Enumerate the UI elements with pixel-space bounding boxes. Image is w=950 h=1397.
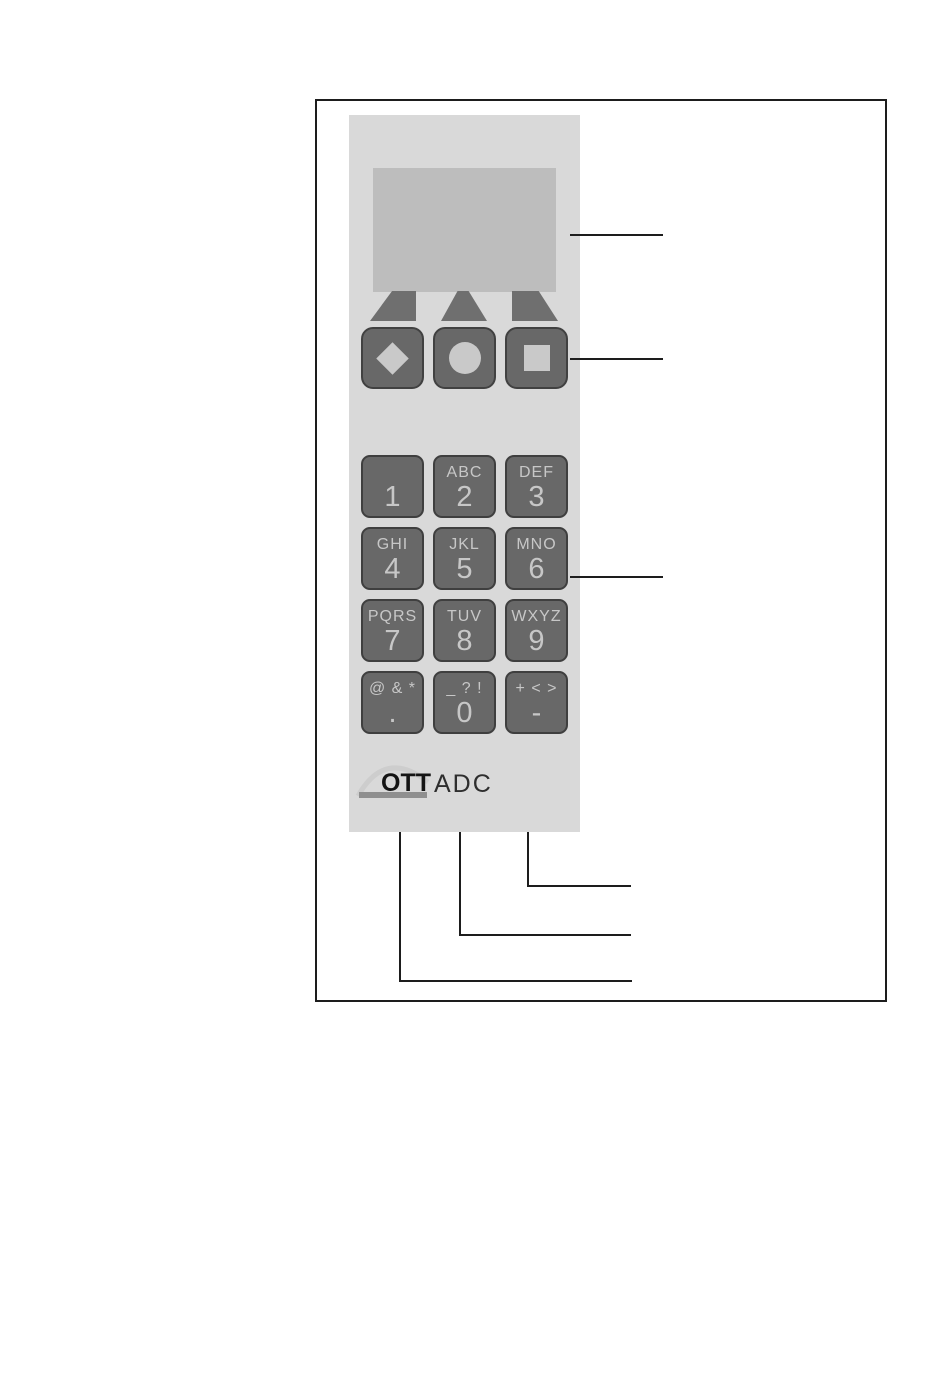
square-icon xyxy=(524,345,550,371)
logo-brand-text: OTT xyxy=(381,769,431,798)
key-letters: _ ? ! xyxy=(435,680,494,697)
keypad: 1 ABC 2 DEF 3 GHI 4 JKL 5 MNO 6 xyxy=(361,455,568,735)
key-period: @ & * . xyxy=(361,671,424,734)
key-digit: 6 xyxy=(507,554,566,585)
key-letters: @ & * xyxy=(363,680,422,697)
function-key-circle xyxy=(433,327,496,389)
key-digit: 9 xyxy=(507,626,566,657)
key-2: ABC 2 xyxy=(433,455,496,518)
key-digit: 7 xyxy=(363,626,422,657)
circle-icon xyxy=(449,342,481,374)
key-digit: 1 xyxy=(363,482,422,513)
document-page: 1 ABC 2 DEF 3 GHI 4 JKL 5 MNO 6 xyxy=(0,0,950,1397)
logo-model-text: ADC xyxy=(434,770,493,799)
softkey-pointer-up-icon xyxy=(441,291,487,321)
key-letters: ABC xyxy=(435,464,494,481)
key-9: WXYZ 9 xyxy=(505,599,568,662)
callout-line-function-keys xyxy=(570,358,663,360)
key-digit: - xyxy=(507,698,566,729)
callout-line-bottom-left-vertical xyxy=(399,832,401,982)
key-6: MNO 6 xyxy=(505,527,568,590)
key-digit: 5 xyxy=(435,554,494,585)
function-key-square xyxy=(505,327,568,389)
key-digit: 2 xyxy=(435,482,494,513)
softkey-pointer-up-right-icon xyxy=(512,291,558,321)
key-digit: 3 xyxy=(507,482,566,513)
callout-line-bottom-mid-vertical xyxy=(459,832,461,936)
key-letters: TUV xyxy=(435,608,494,625)
key-letters: GHI xyxy=(363,536,422,553)
callout-line-bottom-right-horizontal xyxy=(527,885,631,887)
key-digit: . xyxy=(363,698,422,729)
brand-logo: OTT ADC xyxy=(349,760,580,820)
key-letters: WXYZ xyxy=(507,608,566,625)
key-letters: + < > xyxy=(507,680,566,697)
key-letters xyxy=(363,464,422,481)
device-panel: 1 ABC 2 DEF 3 GHI 4 JKL 5 MNO 6 xyxy=(349,115,580,832)
key-0: _ ? ! 0 xyxy=(433,671,496,734)
key-digit: 8 xyxy=(435,626,494,657)
callout-line-bottom-right-vertical xyxy=(527,832,529,887)
callout-line-display xyxy=(570,234,663,236)
softkey-pointer-up-left-icon xyxy=(370,291,416,321)
key-letters: JKL xyxy=(435,536,494,553)
key-digit: 4 xyxy=(363,554,422,585)
key-8: TUV 8 xyxy=(433,599,496,662)
key-letters: DEF xyxy=(507,464,566,481)
function-key-diamond xyxy=(361,327,424,389)
key-4: GHI 4 xyxy=(361,527,424,590)
key-3: DEF 3 xyxy=(505,455,568,518)
callout-line-keypad xyxy=(570,576,663,578)
key-1: 1 xyxy=(361,455,424,518)
key-7: PQRS 7 xyxy=(361,599,424,662)
key-letters: MNO xyxy=(507,536,566,553)
key-digit: 0 xyxy=(435,698,494,729)
key-letters: PQRS xyxy=(363,608,422,625)
callout-line-bottom-mid-horizontal xyxy=(459,934,631,936)
diamond-icon xyxy=(376,342,409,375)
device-display xyxy=(373,168,556,292)
key-5: JKL 5 xyxy=(433,527,496,590)
key-minus: + < > - xyxy=(505,671,568,734)
callout-line-bottom-left-horizontal xyxy=(399,980,632,982)
